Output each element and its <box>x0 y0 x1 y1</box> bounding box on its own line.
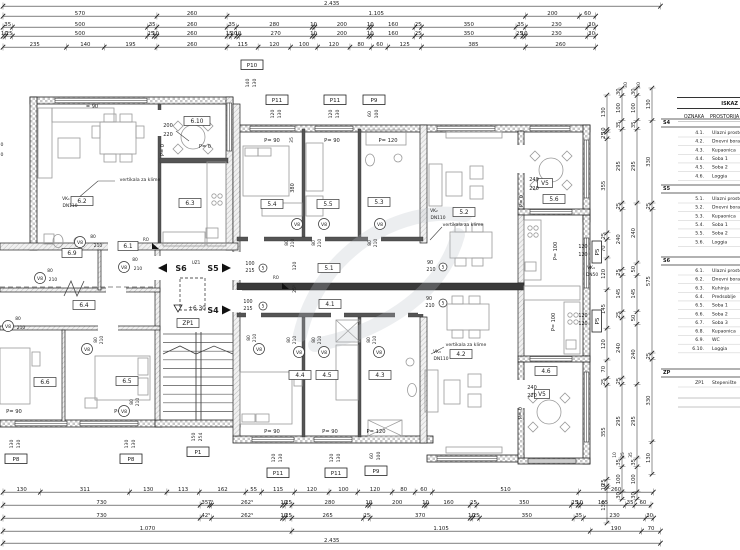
furniture <box>218 194 222 198</box>
room-label: 4.5 <box>322 373 332 379</box>
furniture <box>455 258 466 266</box>
door-opening <box>156 110 162 136</box>
dim-label: 200 <box>547 11 558 17</box>
furniture <box>452 330 463 338</box>
plan-annotation: 25 <box>620 452 626 458</box>
plan-annotation: 130 <box>277 110 283 119</box>
furniture <box>408 384 417 397</box>
plan-annotation: 120 <box>271 454 277 463</box>
dim-label: 35 <box>149 22 156 28</box>
furniture <box>469 330 480 338</box>
plan-annotation: 80 <box>246 335 252 341</box>
furniture <box>429 164 442 206</box>
plan-annotation: 80 <box>366 337 372 343</box>
plan-annotation: 120 <box>270 110 276 119</box>
furniture-chair <box>560 393 570 403</box>
table-cell-prostorija: Ulazni prostor <box>712 268 740 274</box>
room-label: ZP1 <box>182 321 193 327</box>
table-cell-oznaka: 4.2. <box>695 139 704 145</box>
table-cell-prostorija: Soba 2 <box>712 231 728 237</box>
table-cell-prostorija: Kupaonica <box>712 213 736 219</box>
dim-label: 385 <box>468 42 478 48</box>
dim-label: 25 <box>363 513 370 519</box>
plan-annotation: DN110 <box>62 203 77 209</box>
plan-annotation: 130 <box>16 440 22 449</box>
furniture-chair <box>560 422 570 432</box>
plan-annotation: 130 <box>252 79 258 88</box>
plan-annotation: P= 100 <box>553 242 559 260</box>
table-cell-oznaka: 6.3. <box>695 285 704 291</box>
dim-label: 355 <box>601 181 607 191</box>
plan-annotation: DN110 <box>430 215 445 221</box>
plan-annotation: 100 <box>245 261 254 267</box>
plan-annotation: 220 <box>527 393 537 399</box>
plan-annotation: 120 <box>328 110 334 119</box>
dim-label: 370 <box>415 513 426 519</box>
plan-annotation: 80 <box>47 268 53 274</box>
furniture-chair <box>173 121 183 131</box>
dim-label: 260 <box>187 42 198 48</box>
vent-symbol-label: V8 <box>121 265 127 271</box>
plan-annotation: 210 <box>135 398 141 407</box>
dim-label: 265 <box>323 513 333 519</box>
dim-marker-label: P5 <box>595 248 601 255</box>
vent-symbol-label: V8 <box>256 347 262 353</box>
table-cell-oznaka: 6.4. <box>695 294 704 300</box>
plan-annotation: 210 <box>94 243 103 249</box>
plan-annotation: 60 <box>369 453 375 459</box>
dim-label: 240 <box>631 349 637 359</box>
dim-marker-label: P11 <box>273 471 284 477</box>
dim-label: 60 <box>420 487 427 493</box>
dim-label: 35 <box>4 22 11 28</box>
dim-marker: P11 <box>325 468 347 478</box>
table-cell-prostorija: Loggia <box>712 173 727 179</box>
furniture <box>0 348 30 404</box>
dim-label: 25 <box>6 31 13 37</box>
furniture <box>470 186 483 199</box>
dim-marker: P11 <box>267 468 289 478</box>
plan-annotation: 25⁵ <box>292 285 298 293</box>
furniture <box>534 233 538 237</box>
dim-label: 35 <box>631 459 637 466</box>
dim-label: 240 <box>616 343 622 353</box>
furniture <box>447 304 489 330</box>
furniture <box>470 166 483 179</box>
furniture <box>206 228 218 238</box>
plan-annotation: 130 <box>124 440 130 449</box>
room-label: 6.4 <box>79 303 89 309</box>
dim-label: 200 <box>337 31 348 37</box>
table-cell-prostorija: WC <box>712 337 720 343</box>
plan-annotation: 90 <box>427 260 433 266</box>
dim-label: 330 <box>646 396 652 406</box>
dim-label: 100 <box>338 487 349 493</box>
room-label: 6.1 <box>123 244 133 250</box>
dim-marker: P8 <box>120 454 142 464</box>
furniture <box>568 320 572 324</box>
dim-label: 30 <box>616 492 622 499</box>
vent-symbol-label: V8 <box>377 222 383 228</box>
room-label: 6.2 <box>77 199 87 205</box>
table-section-id: ZP <box>663 370 671 376</box>
room-label: 4.2 <box>456 352 466 358</box>
dim-label: 80 <box>357 42 364 48</box>
furniture-chair <box>562 180 572 190</box>
dim-label: 130 <box>646 453 652 463</box>
furniture <box>446 447 502 453</box>
table-section-id: S4 <box>663 120 671 126</box>
plan-annotation: vertikala za klime <box>443 222 484 228</box>
partition-wall <box>358 129 361 237</box>
plan-annotation: P= 90 <box>322 429 338 435</box>
furniture <box>524 286 580 300</box>
table-cell-prostorija: Soba 3 <box>712 320 728 326</box>
table-cell-prostorija: Soba 2 <box>712 311 728 317</box>
dim-label: 280 <box>269 22 280 28</box>
dim-label: 70 <box>601 245 607 252</box>
plan-annotation: 210 <box>317 336 323 345</box>
plan-annotation: P= 0 <box>519 195 525 207</box>
table-cell-oznaka: 6.2. <box>695 277 704 283</box>
dim-label: 240 <box>631 228 637 238</box>
room-label: 6.10 <box>191 119 204 125</box>
furniture <box>469 296 480 304</box>
table-cell-oznaka: 6.6. <box>695 311 704 317</box>
dim-label: 270 <box>271 31 282 37</box>
furniture <box>537 400 561 424</box>
dim-marker-label: P9 <box>373 469 380 475</box>
plan-annotation: P= 90 <box>324 138 340 144</box>
plan-annotation: 240 <box>529 177 539 183</box>
dim-label: 235 <box>30 42 40 48</box>
dim-label: 1.070 <box>140 526 156 532</box>
furniture <box>212 201 216 205</box>
plan-annotation: 100 <box>374 110 380 119</box>
interior-wall <box>98 250 101 290</box>
plan-annotation: 150 <box>191 433 197 442</box>
furniture <box>564 302 580 354</box>
door-tag-label: 5 <box>262 266 265 272</box>
dim-marker: P11 <box>266 95 288 105</box>
furniture <box>245 148 258 156</box>
interior-wall <box>518 283 524 356</box>
dim-label: 160 <box>388 22 399 28</box>
vent-symbol-label: V8 <box>321 222 327 228</box>
dim-label: 1.105 <box>433 526 448 532</box>
dim-label: 130 <box>646 99 652 109</box>
table-cell-prostorija: Predsoblje <box>712 294 736 300</box>
dim-label: 262⁵ <box>241 512 253 519</box>
dim-label: 25 <box>470 500 477 506</box>
dim-label: 35 <box>228 22 235 28</box>
dim-label: 25 <box>473 513 480 519</box>
section-arrow-icon <box>222 306 231 315</box>
plan-annotation: 90 <box>426 296 432 302</box>
dim-marker: P8 <box>5 454 27 464</box>
dim-label: 295 <box>631 161 637 171</box>
dim-label: 25 <box>285 500 292 506</box>
dim-label: 260 <box>187 11 198 17</box>
door-opening <box>516 380 525 408</box>
table-cell-prostorija: Soba 1 <box>712 303 728 309</box>
watermark-shape <box>300 214 465 345</box>
dim-label: 510 <box>500 487 511 493</box>
dim-label: 50 <box>631 266 637 273</box>
room-label: 4.1 <box>325 302 335 308</box>
room-schedule-table: ISKAZ POVRŠINAOZNAKAPROSTORIJAS44.1.Ulaz… <box>661 98 740 408</box>
interior-wall <box>420 125 427 243</box>
plan-annotation: RO <box>143 237 149 242</box>
dim-label: 70 <box>601 366 607 373</box>
dim-label: 25 <box>285 513 292 519</box>
table-cell-oznaka: 6.1. <box>695 268 704 274</box>
table-cell-oznaka: 5.6. <box>695 239 704 245</box>
plan-annotation: 0 <box>1 142 4 148</box>
table-cell-oznaka: 5.3. <box>695 213 704 219</box>
dim-label: 295 <box>616 416 622 426</box>
walls-layer <box>0 97 590 464</box>
vent-symbol-label: V8 <box>294 222 300 228</box>
plan-annotation: 0 <box>1 152 4 158</box>
table-cell-prostorija: Kupaonica <box>712 147 736 153</box>
furniture <box>212 194 216 198</box>
plan-annotation: DN110 <box>433 356 448 362</box>
dim-marker-label: P10 <box>247 63 258 69</box>
exterior-wall <box>583 215 590 362</box>
plan-annotation: DN50 <box>586 272 598 278</box>
furniture <box>306 143 323 191</box>
plan-annotation: 210 <box>49 277 58 283</box>
plan-annotation: VK₄ <box>587 265 595 271</box>
furniture-chair <box>530 151 540 161</box>
dim-label: 230 <box>551 22 562 28</box>
dim-label: 120 <box>329 42 340 48</box>
table-cell-oznaka: 6.7. <box>695 320 704 326</box>
dim-label: 1.105 <box>369 11 384 17</box>
plan-annotation: 80 <box>15 316 21 322</box>
plan-annotation: 200 <box>163 123 173 129</box>
plan-annotation: 210 <box>292 336 298 345</box>
plan-annotation: 210 <box>99 336 105 345</box>
plan-annotation: P= 0 <box>160 144 166 156</box>
dim-marker: P10 <box>241 60 263 70</box>
room-label: 6.5 <box>122 379 132 385</box>
furniture-layer <box>0 108 580 453</box>
room-label: 4.4 <box>295 373 305 379</box>
furniture <box>58 138 80 158</box>
table-cell-prostorija: Loggia <box>712 346 727 352</box>
plan-annotation: 80 <box>93 337 99 343</box>
table-cell-oznaka: 6.5. <box>695 303 704 309</box>
vent-symbol-label: V8 <box>37 276 43 282</box>
table-cell-prostorija: Kupaonica <box>712 329 736 335</box>
plan-annotation: = 90 <box>86 104 98 110</box>
plan-annotation: VK₃ <box>433 349 441 355</box>
exterior-wall <box>30 97 37 250</box>
furniture-chair <box>528 422 538 432</box>
plan-annotation: vertikala za klime <box>120 177 161 183</box>
furniture <box>568 313 572 317</box>
plan-annotation: 215 <box>245 268 254 274</box>
table-cell-prostorija: Soba 2 <box>712 165 728 171</box>
dim-label: 350 <box>519 500 530 506</box>
plan-annotation: 80 <box>132 257 138 263</box>
table-cell-oznaka: 5.1. <box>695 196 704 202</box>
vent-symbol-label: V8 <box>321 350 327 356</box>
furniture <box>136 126 144 138</box>
dim-label: 262⁵ <box>241 499 253 506</box>
room-label: 6.9 <box>67 251 77 257</box>
plan-annotation: 210 <box>17 325 26 331</box>
dim-label: 25 <box>415 31 422 37</box>
furniture <box>92 126 100 138</box>
plan-annotation: 80 <box>129 399 135 405</box>
furniture <box>52 108 114 122</box>
dim-marker: P9 <box>365 466 387 476</box>
vent-symbol-label: V8 <box>376 350 382 356</box>
dim-marker: P1 <box>187 447 209 457</box>
table-cell-oznaka: 4.3. <box>695 147 704 153</box>
furniture <box>104 154 116 162</box>
door-opening <box>98 324 118 332</box>
plan-annotation: 210 <box>317 239 323 248</box>
dim-label: 120 <box>601 339 607 349</box>
table-cell-prostorija: Stepenište <box>712 379 737 386</box>
plan-annotation: P= 90 <box>264 138 280 144</box>
dim-label: 230 <box>609 513 620 519</box>
room-label: 6.6 <box>40 380 50 386</box>
dim-marker-label: P5 <box>595 317 601 324</box>
interior-wall <box>62 330 65 422</box>
furniture <box>468 374 481 387</box>
dim-label: 130 <box>601 501 607 511</box>
section-arrow-label: S6 <box>175 264 187 273</box>
leader-line <box>176 131 189 141</box>
furniture <box>528 226 532 230</box>
plan-annotation: 210 <box>134 266 143 272</box>
table-cell-oznaka: 5.4. <box>695 222 704 228</box>
plan-annotation: 120 <box>578 313 587 319</box>
furniture <box>446 172 462 196</box>
dim-marker-label: P11 <box>272 98 283 104</box>
door-tag-label: 5 <box>262 304 265 310</box>
room-label: 5.5 <box>323 202 333 208</box>
plan-annotation: 210 <box>252 334 258 343</box>
dim-label: 162 <box>217 487 227 493</box>
furniture <box>406 358 414 366</box>
furniture <box>446 132 502 138</box>
table-cell-prostorija: Kuhinja <box>712 285 729 291</box>
dim-label: 55 <box>250 487 257 493</box>
dim-label: 35 <box>575 513 582 519</box>
plan-annotation: P= 0 <box>199 144 211 150</box>
table-cell-prostorija: Ulazni prostor <box>712 130 740 136</box>
table-cell-oznaka: 4.6. <box>695 173 704 179</box>
plan-annotation: 10 <box>612 452 618 458</box>
door-opening <box>248 235 264 242</box>
dim-label: 295 <box>616 161 622 171</box>
dim-marker-label: P1 <box>195 450 202 456</box>
table-cell-oznaka: 6.9. <box>695 337 704 343</box>
section-arrow-label: S5 <box>207 264 219 273</box>
dim-label: 35 <box>631 122 637 129</box>
dim-label: 145 <box>616 289 622 299</box>
leader-line <box>430 227 442 240</box>
dim-label: 575 <box>646 276 652 286</box>
dim-label: 2.435 <box>324 1 339 7</box>
dim-marker-label: P11 <box>331 471 342 477</box>
plan-annotation: 120 <box>292 262 298 271</box>
dim-marker: P5 <box>592 310 602 332</box>
furniture <box>120 114 132 122</box>
dim-label: 160 <box>388 31 399 37</box>
dim-label: 730 <box>96 500 107 506</box>
furniture <box>472 258 483 266</box>
plan-annotation: P= 90 <box>6 409 22 415</box>
room-label: V5 <box>538 392 546 398</box>
dim-label: 100 <box>631 474 637 484</box>
plan-annotation: P= 120 <box>378 138 397 144</box>
interior-wall <box>518 215 524 283</box>
floor-plan-canvas: 2.4355702601.105200603550035260352801020… <box>0 0 740 550</box>
plan-annotation: 80 <box>286 337 292 343</box>
plan-annotation: 120 <box>578 321 587 327</box>
plan-annotation: P= 0 <box>518 407 524 419</box>
door-opening <box>331 311 344 318</box>
furniture <box>444 380 460 404</box>
section-arrow-label: S4 <box>207 306 219 315</box>
plan-annotation: 30 <box>636 82 642 88</box>
plan-annotation: 80 <box>90 234 96 240</box>
slab-wall <box>237 283 524 290</box>
furniture <box>38 108 52 178</box>
plan-annotation: P= 120 <box>366 429 385 435</box>
dim-label: 230 <box>551 31 562 37</box>
door-opening <box>231 290 242 312</box>
table-cell-oznaka: 4.1. <box>695 130 704 136</box>
dim-label: 70 <box>648 526 655 532</box>
vent-symbol-label: V8 <box>84 347 90 353</box>
dim-label: 30 <box>631 88 637 95</box>
dim-label: 60 <box>376 42 383 48</box>
furniture <box>207 162 226 246</box>
furniture <box>240 372 292 424</box>
furniture <box>243 146 289 196</box>
plan-annotation: 215 <box>243 306 252 312</box>
furniture <box>528 233 532 237</box>
furniture <box>566 340 576 349</box>
furniture <box>100 122 136 154</box>
dim-label: 120 <box>601 269 607 279</box>
vent-symbol-label: V8 <box>296 350 302 356</box>
table-cell-oznaka: 4.4. <box>695 156 704 162</box>
plan-annotation: 35 <box>289 137 295 143</box>
plan-annotation: 220 <box>163 132 173 138</box>
dim-label: 130 <box>17 487 28 493</box>
plan-annotation: 60 <box>367 111 373 117</box>
dim-label: 30 <box>631 492 637 499</box>
dim-label: 113 <box>178 487 188 493</box>
vent-symbol-label: V8 <box>77 240 83 246</box>
table-cell-prostorija: Ulazni prostor <box>712 196 740 202</box>
partition-wall <box>302 129 305 237</box>
plan-annotation: 210 <box>425 303 434 309</box>
dim-label: 350 <box>522 513 533 519</box>
furniture-chair <box>562 151 572 161</box>
door-opening <box>246 311 261 318</box>
dim-label: 330 <box>646 157 652 167</box>
